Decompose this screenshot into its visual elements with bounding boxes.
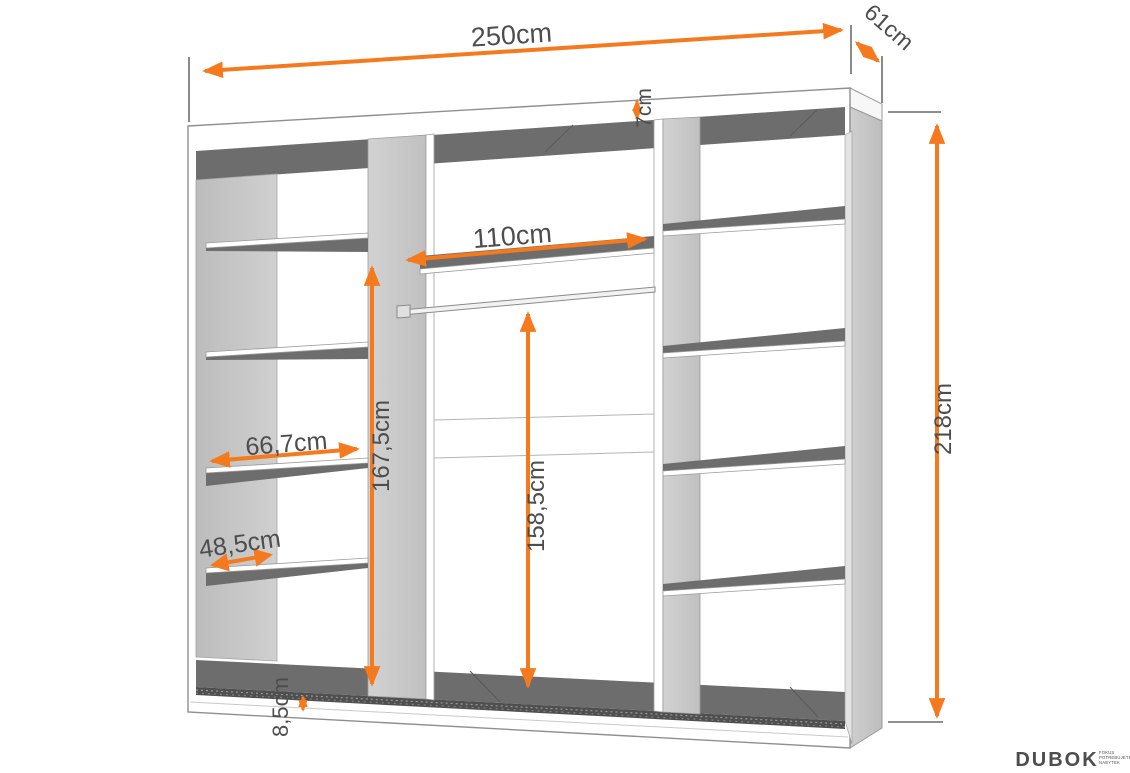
dubok-logo: DUBOK FOKUS POTREBUJETE NABYTEK bbox=[1015, 749, 1130, 771]
arrow-depth-61 bbox=[857, 43, 878, 61]
diagram-canvas: 250cm 61cm 7cm 218cm 110cm 167,5cm 158,5… bbox=[0, 0, 1130, 773]
right-wall-inner-edge bbox=[845, 131, 852, 744]
label-inner-height-167: 167,5cm bbox=[368, 400, 395, 492]
right-divider-front-edge bbox=[654, 119, 663, 712]
dubok-logo-text: DUBOK bbox=[1015, 749, 1098, 771]
right-side-panel bbox=[850, 107, 882, 748]
label-rod-height-158: 158,5cm bbox=[523, 460, 550, 552]
wardrobe-dimension-diagram: 250cm 61cm 7cm 218cm 110cm 167,5cm 158,5… bbox=[0, 0, 1130, 773]
right-divider-side-face bbox=[663, 117, 700, 714]
label-width-250: 250cm bbox=[470, 17, 553, 52]
label-middle-width-110: 110cm bbox=[472, 218, 553, 254]
wardrobe-body bbox=[188, 88, 882, 748]
rod-end-bracket bbox=[397, 305, 410, 318]
left-divider-front-edge bbox=[426, 134, 434, 700]
dubok-logo-tagline-line3: NABYTEK bbox=[1099, 760, 1120, 765]
label-plinth-8: 8,5cm bbox=[268, 677, 293, 737]
label-depth-61: 61cm bbox=[859, 0, 919, 55]
label-height-218: 218cm bbox=[930, 383, 957, 455]
label-top-panel-7: 7cm bbox=[633, 88, 656, 128]
